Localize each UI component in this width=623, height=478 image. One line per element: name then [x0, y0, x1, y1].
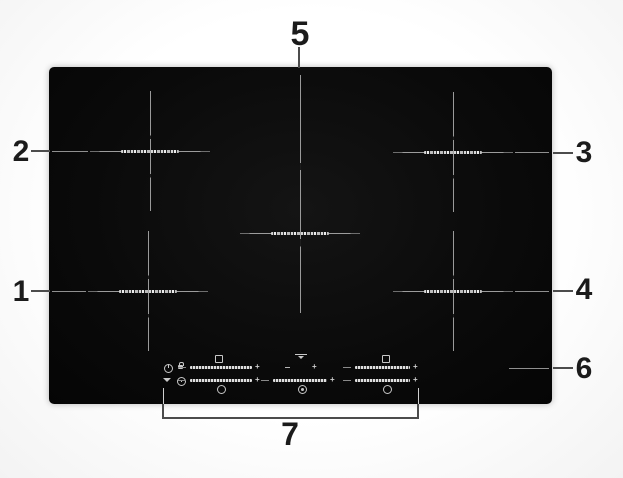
callout4-leader — [553, 290, 573, 292]
callout1-leader — [31, 290, 50, 292]
plus-icon: + — [255, 376, 260, 384]
callout7-bracket-inner-left — [163, 388, 164, 404]
leader-stub-area6 — [509, 368, 549, 369]
plus-icon: + — [255, 363, 260, 371]
bridge-zone-icon — [295, 354, 307, 360]
callout-label-4: 4 — [576, 275, 593, 305]
zone-select-square-icon — [382, 355, 390, 363]
callout6-leader — [553, 367, 573, 369]
callout-label-3: 3 — [576, 138, 593, 168]
diagram-canvas: + + + + + + 1 2 — [0, 0, 623, 478]
fan-icon — [163, 378, 171, 382]
leader-stub-zone3 — [515, 152, 549, 153]
callout-label-7: 7 — [281, 418, 299, 450]
leader-stub-zone1 — [52, 291, 86, 292]
power-icon — [164, 364, 173, 373]
power-slider — [273, 379, 327, 382]
zone-cross-vertical — [150, 91, 151, 211]
callout-label-1: 1 — [13, 277, 30, 307]
zone-select-circle-icon — [383, 385, 392, 394]
plus-icon: + — [312, 363, 317, 371]
zone-select-square-icon — [215, 355, 223, 363]
power-slider — [190, 379, 252, 382]
callout2-leader — [31, 150, 50, 152]
callout-label-5: 5 — [291, 17, 310, 51]
timer-icon — [177, 377, 186, 386]
zone-cross-vertical — [453, 92, 454, 212]
callout-label-6: 6 — [576, 354, 593, 384]
callout7-bracket-inner-right — [418, 388, 419, 404]
plus-icon: + — [413, 376, 418, 384]
leader-stub-zone2 — [52, 151, 88, 152]
induction-hob-surface: + + + + + + — [49, 67, 552, 404]
zone-select-circle-icon — [298, 385, 307, 394]
zone-select-circle-icon — [217, 385, 226, 394]
callout3-leader — [553, 152, 573, 154]
minus-icon — [285, 367, 290, 368]
power-slider — [355, 379, 410, 382]
plus-icon: + — [330, 376, 335, 384]
leader-stub-zone4 — [515, 291, 549, 292]
power-slider — [355, 366, 410, 369]
callout-label-2: 2 — [13, 137, 30, 167]
zone-cross-vertical — [148, 231, 149, 351]
power-slider — [190, 366, 252, 369]
zone-cross-vertical — [453, 231, 454, 351]
zone-cross-vertical — [300, 75, 301, 313]
plus-icon: + — [413, 363, 418, 371]
